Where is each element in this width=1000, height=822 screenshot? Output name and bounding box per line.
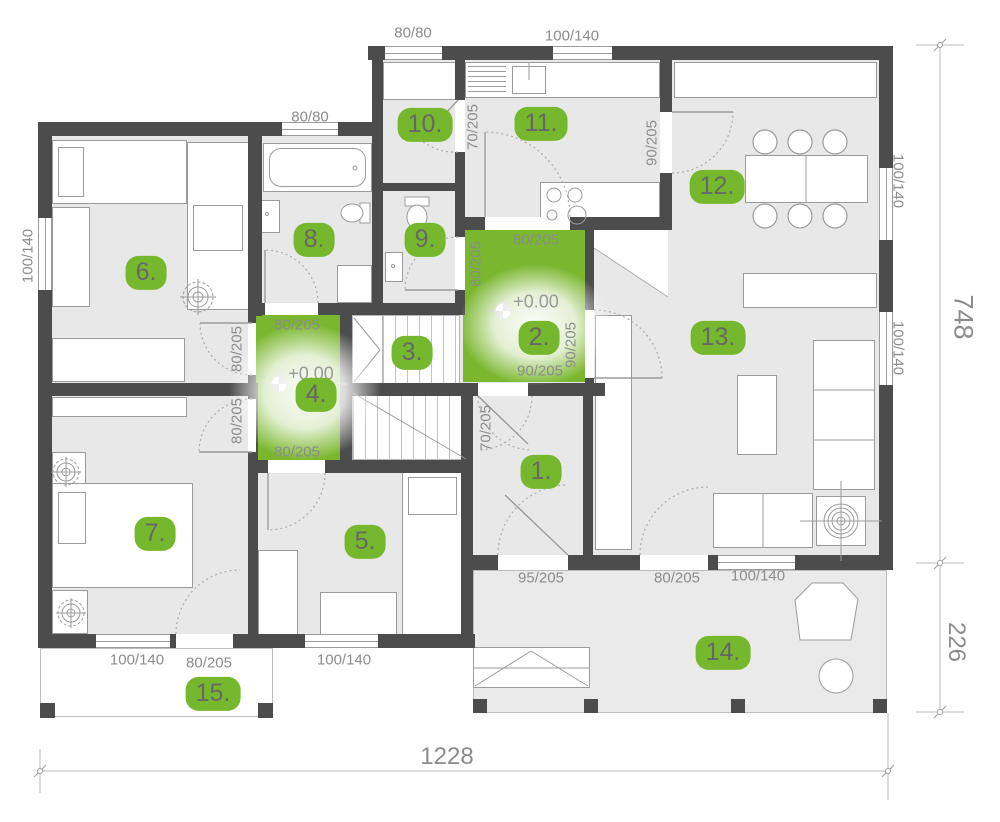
room-badge-10: 10.	[398, 108, 453, 142]
window-100x140	[553, 46, 612, 60]
door-gap-80x205	[455, 237, 465, 290]
door-gap-90x205	[660, 112, 672, 173]
room-badge-1: 1.	[521, 455, 562, 489]
wall-room6-8-divider	[248, 136, 262, 316]
dim-label: 80/205	[229, 326, 246, 372]
room-badge-15: 15.	[186, 677, 241, 711]
dim-label: 80/80	[291, 109, 329, 126]
dim-label: 100/140	[20, 229, 37, 283]
sideboard	[743, 273, 877, 308]
dim-label: 100/140	[545, 28, 599, 45]
door-gap-80x205	[176, 634, 233, 648]
bench	[52, 338, 185, 382]
terrace-post	[584, 699, 598, 713]
overall-front-depth-label: 226	[942, 622, 970, 662]
room-badge-3: 3.	[392, 336, 433, 370]
dim-label: 80/205	[274, 317, 320, 334]
closet	[383, 62, 457, 100]
floor-plan: 80/80 100/140 80/80 100/140 70/205 90/20…	[0, 0, 1000, 822]
pillow	[58, 147, 84, 197]
shower-corner	[337, 265, 372, 303]
door-gap-70x205	[455, 100, 465, 152]
door-gap-80x205	[265, 303, 318, 315]
dim-label: 100/140	[110, 652, 164, 669]
cabinet	[674, 62, 877, 98]
room-badge-8: 8.	[294, 223, 335, 257]
nightstand	[52, 590, 88, 634]
wardrobe	[258, 550, 298, 636]
door-gap-80x205	[485, 217, 570, 230]
terrace-post	[873, 699, 887, 713]
shelf	[193, 205, 243, 251]
dim-label: 80/80	[394, 25, 432, 42]
dim-label: 80/205	[654, 570, 700, 587]
dim-label: 100/140	[890, 154, 907, 208]
dim-label: 80/205	[274, 444, 320, 461]
room-badge-9: 9.	[405, 223, 446, 257]
sink	[385, 252, 403, 282]
terrace-post	[258, 703, 273, 718]
dim-label: 95/205	[518, 570, 564, 587]
window-100x140	[96, 634, 170, 648]
room-badge-5: 5.	[345, 525, 386, 559]
room-badge-4: 4.	[296, 378, 337, 412]
room-badge-2: 2.	[519, 321, 560, 355]
dining-table	[745, 155, 868, 203]
dim-label: 80/205	[468, 241, 485, 287]
pillow	[408, 477, 457, 515]
window-80x80	[385, 46, 442, 60]
dim-label: 90/205	[644, 120, 661, 166]
wall-room10-9-divider	[379, 183, 465, 191]
room-badge-7: 7.	[135, 517, 176, 551]
wall-room5-right	[461, 555, 473, 648]
dresser	[52, 207, 90, 307]
dish-rack	[468, 66, 506, 92]
window-100x140	[305, 634, 378, 648]
wall-room2-bottom	[347, 383, 605, 396]
dim-label: 70/205	[478, 405, 495, 451]
dim-label: 100/140	[731, 568, 785, 585]
wall-room6-7-divider	[38, 383, 256, 396]
terrace-post	[473, 699, 487, 713]
entrance-steps	[473, 647, 590, 688]
pillow	[58, 492, 86, 544]
terrace-14	[473, 570, 887, 713]
door-gap-95x205	[498, 555, 568, 570]
dim-label: 90/205	[563, 322, 580, 368]
wall-right	[879, 46, 893, 570]
door-gap-80x205	[268, 460, 325, 473]
wall-top-main	[368, 46, 893, 60]
sofa-vertical	[813, 340, 875, 490]
terrace-post	[731, 699, 745, 713]
dim-label: 70/205	[465, 104, 482, 150]
room-badge-11: 11.	[515, 107, 568, 141]
dim-label: 90/205	[517, 363, 563, 380]
dim-label: 100/140	[317, 652, 371, 669]
kitchen-sink	[512, 66, 546, 94]
level-label: +0.00	[513, 292, 559, 313]
sofa-horizontal	[713, 493, 813, 548]
overall-width-label: 1228	[420, 743, 473, 771]
desk	[320, 592, 397, 636]
room-badge-14: 14.	[696, 636, 751, 670]
dim-label: 80/205	[229, 398, 246, 444]
room-badge-6: 6.	[126, 256, 167, 290]
dim-label: 80/205	[186, 655, 232, 672]
door-gap-70x205	[478, 383, 528, 396]
wall-room1-right	[583, 396, 593, 555]
wardrobe	[52, 397, 187, 417]
bathtub-basin	[269, 148, 366, 187]
dim-label: 100/140	[890, 321, 907, 375]
coffee-table	[737, 375, 777, 455]
room-badge-12: 12.	[690, 170, 745, 204]
pillar	[592, 228, 612, 248]
overall-depth-label: 748	[948, 294, 979, 339]
room-badge-13: 13.	[691, 321, 746, 355]
terrace-post	[40, 703, 55, 718]
dim-label: 80/205	[513, 232, 559, 249]
door-gap-80x205	[640, 555, 708, 570]
window-100x140	[38, 218, 52, 290]
fireplace	[816, 496, 866, 546]
